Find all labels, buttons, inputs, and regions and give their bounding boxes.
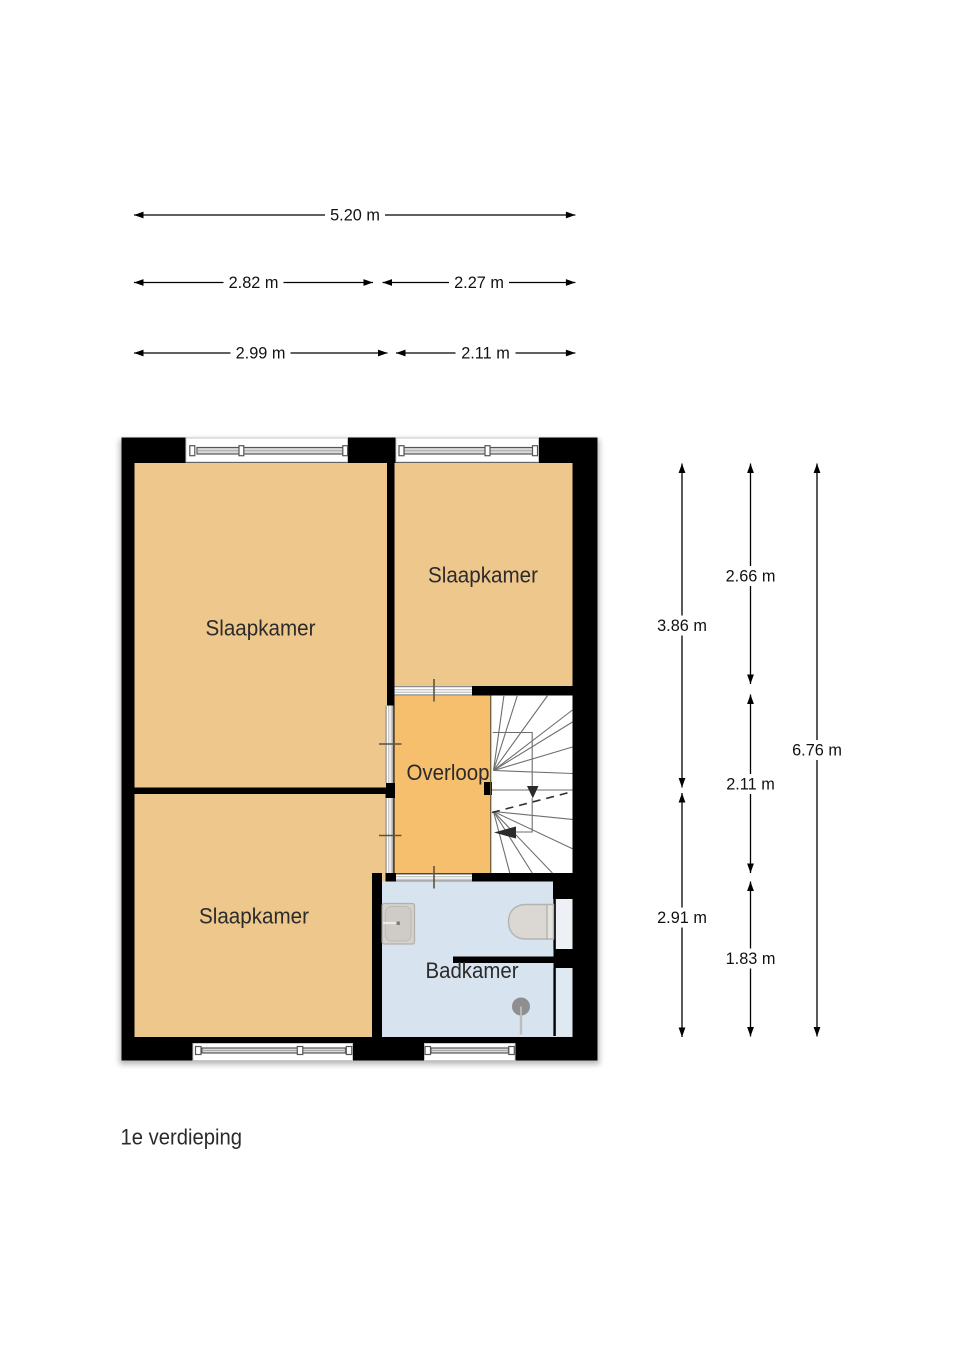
svg-text:2.91 m: 2.91 m bbox=[657, 909, 707, 927]
svg-text:2.66 m: 2.66 m bbox=[726, 568, 776, 586]
svg-text:1e verdieping: 1e verdieping bbox=[121, 1125, 243, 1150]
svg-text:Overloop: Overloop bbox=[407, 760, 490, 785]
svg-text:1.83 m: 1.83 m bbox=[726, 950, 776, 968]
svg-text:5.20 m: 5.20 m bbox=[330, 207, 380, 225]
svg-text:6.76 m: 6.76 m bbox=[792, 742, 842, 760]
svg-text:2.99 m: 2.99 m bbox=[236, 345, 286, 363]
svg-text:2.11 m: 2.11 m bbox=[726, 776, 775, 794]
svg-text:Badkamer: Badkamer bbox=[426, 958, 519, 983]
svg-text:Slaapkamer: Slaapkamer bbox=[206, 616, 316, 641]
svg-text:3.86 m: 3.86 m bbox=[657, 617, 707, 635]
svg-text:2.11 m: 2.11 m bbox=[461, 345, 510, 363]
svg-text:2.82 m: 2.82 m bbox=[229, 274, 279, 292]
svg-text:Slaapkamer: Slaapkamer bbox=[428, 563, 538, 588]
svg-text:2.27 m: 2.27 m bbox=[454, 274, 504, 292]
svg-text:Slaapkamer: Slaapkamer bbox=[199, 904, 309, 929]
